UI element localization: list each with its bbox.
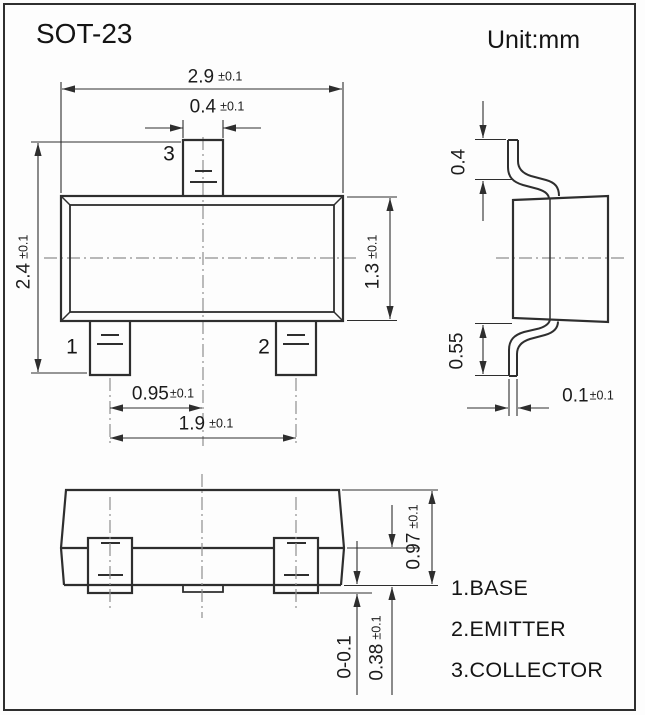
side-view-drawing — [467, 101, 624, 416]
pin-3-label: 3 — [163, 144, 175, 165]
front-view-drawing — [31, 82, 397, 446]
dim-lead-foot: 0.38±0.1 — [368, 615, 387, 680]
legend-item-collector: 3.COLLECTOR — [451, 660, 603, 682]
drawing-canvas — [0, 0, 645, 715]
dim-body-width: 2.9±0.1 — [188, 68, 243, 87]
dim-standoff: 0-0.1 — [336, 631, 355, 678]
dim-lead-span: 1.9±0.1 — [179, 415, 234, 434]
pin-1-label: 1 — [66, 337, 78, 358]
drawing-sheet: SOT-23 Unit:mm 3 1 2 2.9±0.1 0.4±0.1 2.4… — [0, 0, 645, 715]
dim-body-thickness: 0.97±0.1 — [405, 504, 424, 569]
dim-lead-width: 0.4±0.1 — [190, 98, 245, 117]
legend-item-emitter: 2.EMITTER — [451, 619, 566, 641]
pin-2-label: 2 — [258, 337, 270, 358]
dim-lead-thickness: 0.1±0.1 — [562, 387, 614, 406]
unit-label: Unit:mm — [487, 26, 580, 55]
dim-overall-height: 2.4±0.1 — [15, 235, 34, 290]
dim-bottom-lead-length: 0.55 — [448, 329, 467, 370]
legend-item-base: 1.BASE — [451, 578, 528, 600]
dim-top-lead-length: 0.4 — [450, 145, 469, 175]
dim-body-height: 1.3±0.1 — [364, 235, 383, 290]
dim-lead-pitch: 0.95±0.1 — [132, 385, 194, 404]
page-title: SOT-23 — [36, 18, 132, 50]
